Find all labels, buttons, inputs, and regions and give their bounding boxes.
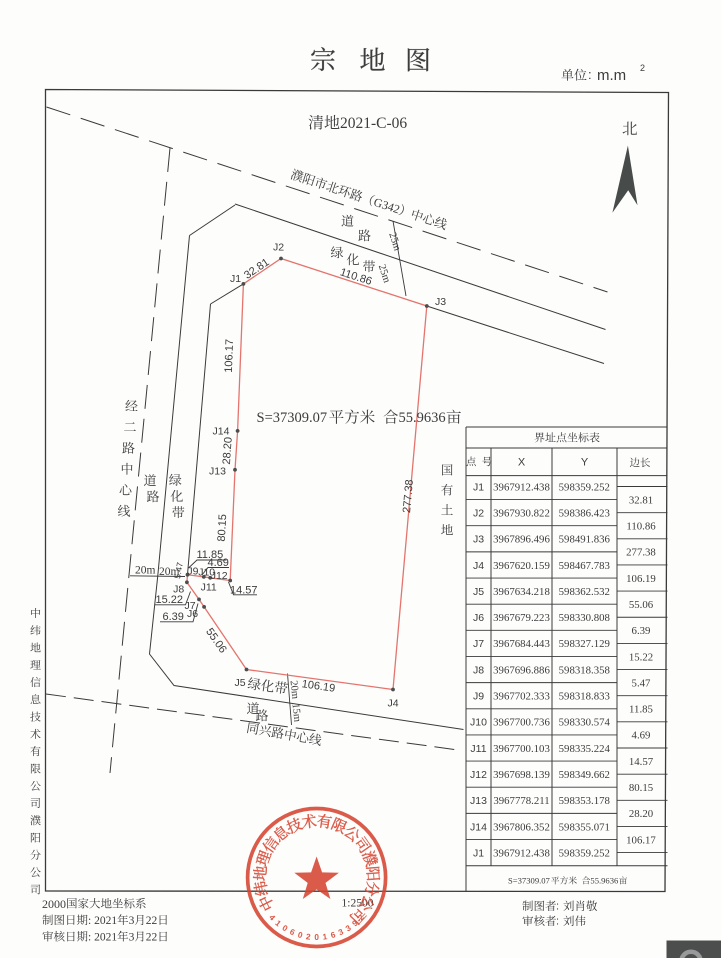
svg-text:3: 3	[129, 932, 135, 944]
svg-text:J7: J7	[184, 600, 195, 612]
svg-text:: 2021: : 2021	[88, 915, 117, 927]
svg-text:28.20: 28.20	[221, 437, 235, 465]
svg-text:m.m: m.m	[597, 67, 626, 84]
svg-text:: 2021: : 2021	[88, 932, 117, 944]
svg-text:J11: J11	[201, 582, 217, 594]
svg-text:598467.783: 598467.783	[559, 560, 610, 572]
svg-text:J13: J13	[470, 795, 487, 807]
svg-text:598362.532: 598362.532	[559, 586, 610, 598]
svg-text:J9: J9	[473, 691, 484, 703]
svg-text:110.86: 110.86	[626, 521, 656, 533]
svg-text:J11: J11	[470, 743, 486, 755]
svg-text:J1: J1	[473, 847, 484, 859]
svg-text:598353.178: 598353.178	[559, 795, 610, 807]
svg-text:80.15: 80.15	[216, 514, 229, 542]
svg-text:J10: J10	[470, 717, 487, 729]
svg-text:J1: J1	[230, 273, 241, 285]
svg-text:22: 22	[146, 915, 158, 927]
svg-text:J14: J14	[213, 425, 230, 437]
svg-text:20m: 20m	[135, 565, 156, 577]
svg-text:3: 3	[129, 915, 135, 927]
svg-text:J1: J1	[473, 481, 484, 493]
svg-text:6.39: 6.39	[163, 611, 184, 623]
svg-text:4.69: 4.69	[208, 557, 229, 569]
svg-text:3967912.438: 3967912.438	[493, 481, 550, 493]
svg-text::: :	[588, 67, 592, 82]
svg-text:3967930.822: 3967930.822	[493, 507, 550, 519]
svg-text:277.38: 277.38	[626, 547, 656, 559]
svg-text:J5: J5	[473, 586, 484, 598]
svg-text:6.39: 6.39	[632, 625, 651, 637]
svg-text:80.15: 80.15	[629, 782, 653, 794]
svg-text:22: 22	[146, 932, 158, 944]
svg-text:0: 0	[314, 933, 319, 942]
svg-text::: :	[556, 916, 559, 928]
svg-text:J3: J3	[435, 296, 446, 308]
svg-text:106.19: 106.19	[626, 573, 656, 585]
svg-text:J2: J2	[273, 241, 284, 253]
svg-text:4.69: 4.69	[632, 730, 651, 742]
svg-text:J4: J4	[473, 560, 484, 572]
svg-text:J3: J3	[473, 534, 484, 546]
svg-text:J4: J4	[387, 697, 398, 709]
svg-text:598335.224: 598335.224	[559, 743, 611, 755]
svg-text:J12: J12	[470, 769, 487, 781]
svg-text:32.81: 32.81	[629, 494, 653, 506]
svg-text:3967700.103: 3967700.103	[493, 743, 550, 755]
svg-text:598330.808: 598330.808	[559, 612, 610, 624]
svg-text:J14: J14	[470, 821, 487, 833]
svg-text:598330.574: 598330.574	[559, 717, 611, 729]
svg-text:J8: J8	[473, 664, 484, 676]
svg-text:106.17: 106.17	[223, 339, 236, 373]
svg-text:3967620.159: 3967620.159	[493, 560, 550, 572]
svg-text:598359.252: 598359.252	[559, 847, 610, 859]
svg-text:S=37309.07: S=37309.07	[257, 410, 328, 426]
svg-text:2021-C-06: 2021-C-06	[340, 115, 407, 132]
svg-text:3967896.496: 3967896.496	[493, 534, 550, 546]
svg-text::: :	[556, 901, 559, 913]
svg-text:598327.129: 598327.129	[559, 638, 610, 650]
svg-text:598318.358: 598318.358	[559, 664, 610, 676]
svg-text:3967634.218: 3967634.218	[493, 586, 550, 598]
svg-text:3967679.223: 3967679.223	[493, 612, 550, 624]
svg-text:S=37309.07: S=37309.07	[508, 876, 551, 886]
svg-text:14.57: 14.57	[230, 584, 258, 596]
svg-text:J12: J12	[211, 570, 228, 582]
svg-text:598386.423: 598386.423	[559, 507, 610, 519]
svg-text:14.57: 14.57	[629, 756, 654, 768]
svg-text:J2: J2	[473, 507, 484, 519]
svg-text:15m: 15m	[290, 703, 303, 723]
svg-text:J5: J5	[234, 677, 245, 689]
svg-text:598491.836: 598491.836	[559, 534, 611, 546]
svg-text:5.47: 5.47	[632, 677, 651, 689]
svg-text:55.9636: 55.9636	[590, 876, 619, 886]
svg-text:3967778.211: 3967778.211	[493, 795, 549, 807]
svg-text:2000: 2000	[42, 897, 66, 911]
svg-text:3967696.886: 3967696.886	[493, 664, 550, 676]
svg-text:598318.833: 598318.833	[559, 691, 610, 703]
svg-text:3967806.352: 3967806.352	[493, 821, 550, 833]
svg-text:598349.662: 598349.662	[559, 769, 610, 781]
svg-text:11.85: 11.85	[629, 704, 653, 716]
svg-text:3967698.139: 3967698.139	[493, 769, 550, 781]
svg-text:J13: J13	[209, 465, 226, 477]
svg-text:28.20: 28.20	[629, 808, 653, 820]
svg-text:3967702.333: 3967702.333	[493, 691, 550, 703]
svg-text:15.22: 15.22	[156, 594, 184, 606]
svg-text:J6: J6	[473, 612, 484, 624]
svg-text:55.06: 55.06	[629, 599, 654, 611]
svg-text:20m: 20m	[288, 680, 301, 700]
svg-text:3967912.438: 3967912.438	[493, 847, 550, 859]
svg-text:J7: J7	[473, 638, 484, 650]
svg-text:3967684.443: 3967684.443	[493, 638, 550, 650]
svg-text:3967700.736: 3967700.736	[493, 717, 550, 729]
svg-text:Y: Y	[581, 457, 589, 469]
svg-text:2: 2	[640, 63, 645, 73]
svg-text:55.9636: 55.9636	[399, 410, 446, 426]
svg-text:15.22: 15.22	[629, 651, 653, 663]
svg-text:598355.071: 598355.071	[559, 821, 610, 833]
svg-text:X: X	[518, 457, 526, 469]
svg-text:106.17: 106.17	[626, 834, 656, 846]
svg-text:598359.252: 598359.252	[559, 481, 610, 493]
